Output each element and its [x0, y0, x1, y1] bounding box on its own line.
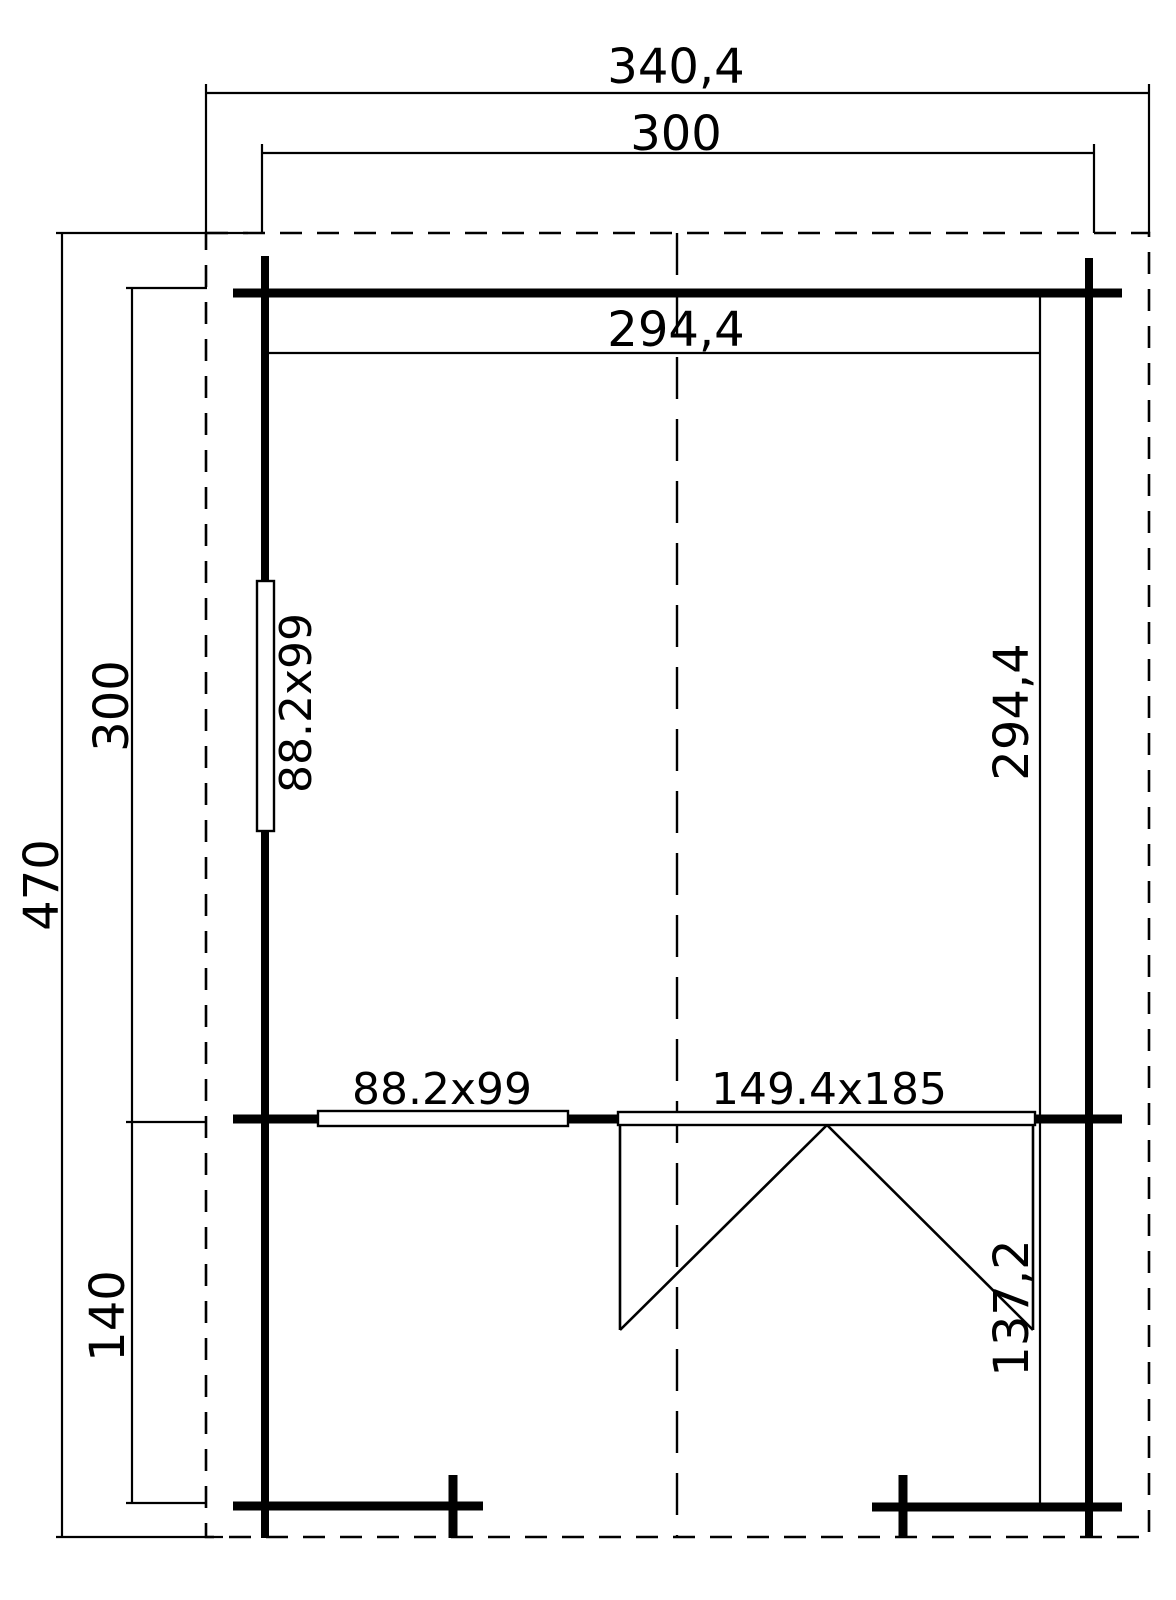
door-label: 149.4x185 — [711, 1064, 947, 1115]
dim-inner-width-label: 294,4 — [607, 302, 744, 358]
dim-overall-depth-label: 470 — [14, 839, 70, 931]
floorplan-sheet: 340,4 300 294,4 88.2x99 149.4x185 470 30… — [0, 0, 1176, 1600]
floorplan-drawing: 340,4 300 294,4 88.2x99 149.4x185 470 30… — [0, 0, 1176, 1600]
side-window-label: 88.2x99 — [271, 613, 322, 793]
front-window-label: 88.2x99 — [352, 1064, 532, 1115]
dim-outer-width-label: 300 — [630, 106, 722, 162]
dim-cabin-depth-label: 300 — [84, 660, 140, 752]
dim-porch-depth-label: 140 — [80, 1270, 136, 1362]
dim-inner-depth-label: 294,4 — [984, 643, 1040, 780]
dim-porch-inner-depth-label: 137,2 — [984, 1239, 1040, 1376]
dim-overall-width-label: 340,4 — [607, 39, 744, 95]
